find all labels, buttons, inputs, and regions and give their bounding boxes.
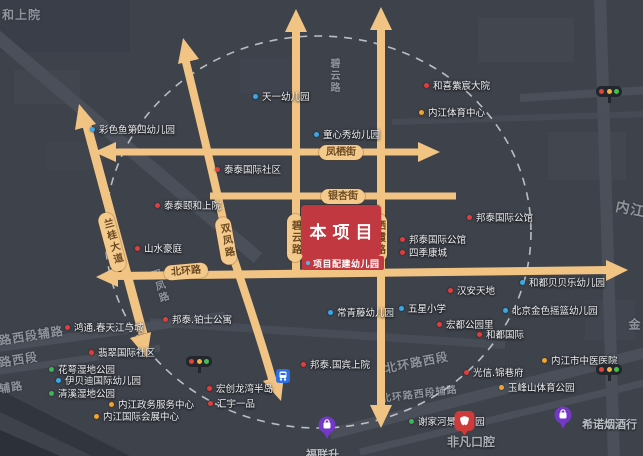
shop-pin-icon[interactable] (318, 416, 336, 440)
kindergarten-dot-icon (306, 261, 310, 265)
traffic-light-icon (596, 364, 622, 381)
building-label: 非凡口腔 (447, 433, 495, 450)
road-beihuan-road (114, 270, 610, 276)
project-kindergarten-bubble[interactable]: 项目配建幼儿园 (302, 256, 384, 270)
project-kindergarten-label: 项目配建幼儿园 (313, 257, 380, 270)
bus-station-icon (276, 369, 290, 383)
traffic-light-icon (596, 86, 622, 103)
project-site-block[interactable]: 本项目 (301, 205, 381, 256)
road-shuangfeng-road (184, 54, 273, 382)
traffic-light-icon (186, 356, 212, 373)
shop-label: 希诺烟酒行 (582, 416, 637, 432)
project-name: 本项目 (304, 218, 379, 243)
shop-label: 福联升 (306, 446, 339, 456)
shop-pin-icon[interactable] (554, 406, 572, 430)
location-map: 和上院碧云路双凤路内江金北环路西段北环路西段辅路路西段辅路路西段辅路 (0, 0, 643, 456)
